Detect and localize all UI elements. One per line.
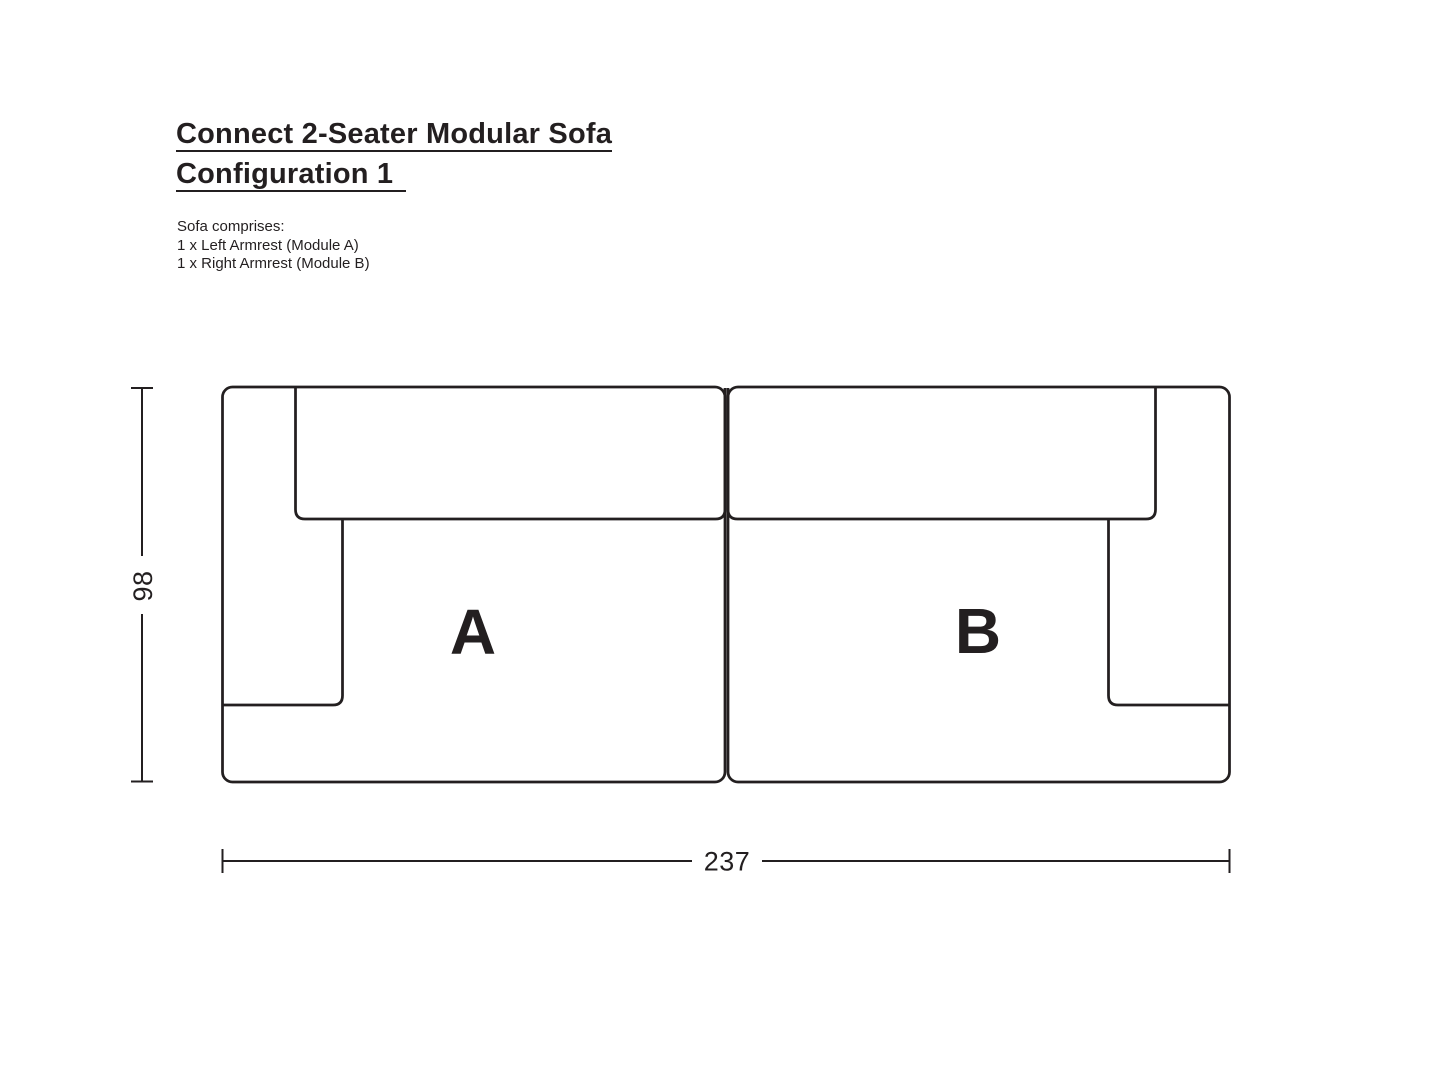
depth-dimension: 98 [128,388,158,782]
module-b-label: B [955,595,1001,667]
module-b-armrest-line [1109,519,1230,705]
page: Connect 2-Seater Modular Sofa Configurat… [0,0,1445,1087]
sofa-plan-diagram: A B 98 237 [0,0,1445,1087]
module-a-outline [223,387,726,782]
module-a-backrest-line [296,388,726,519]
module-b-backrest-line [728,388,1156,519]
width-dimension-label: 237 [704,847,751,877]
width-dimension: 237 [223,847,1230,877]
module-a-armrest-line [223,519,343,705]
depth-dimension-label: 98 [128,570,158,601]
module-a-label: A [450,596,496,668]
